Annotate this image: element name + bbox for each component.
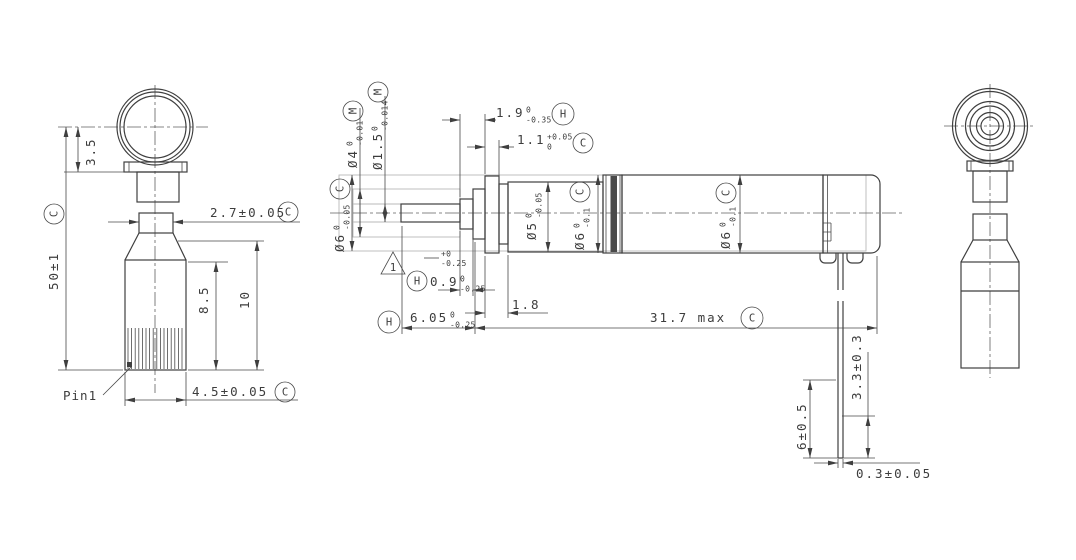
solder-tab-right — [847, 253, 863, 263]
dia4-sup: 0 — [346, 141, 355, 146]
dim-4-5-text: 4.5±0.05 — [192, 384, 268, 399]
dia6-env-text: Ø6 — [332, 233, 347, 252]
shoulder-taper — [125, 233, 186, 260]
dim-1-1-sup: +0.05 — [547, 133, 573, 142]
dim-2-7-flag: C — [285, 207, 291, 219]
dim-10-text: 10 — [237, 290, 252, 309]
dim-6-text: 6±0.5 — [794, 402, 809, 450]
dim-6-05-sub: -0.25 — [450, 321, 476, 330]
dia6-mid-text: Ø6 — [572, 231, 587, 250]
flange-neck — [499, 184, 508, 244]
dim-50-flag: C — [49, 211, 61, 217]
ext-lines — [838, 459, 843, 468]
dim-4-5-flag: C — [282, 387, 288, 399]
dia6-right-sup: 0 — [719, 222, 728, 227]
dia1-5-text: Ø1.5 — [370, 132, 385, 170]
dim-6-05-flag: H — [386, 317, 392, 329]
revision-triangle-number: 1 — [390, 262, 396, 274]
groove-band — [611, 176, 618, 252]
dim-50-label: 50±1 C — [44, 204, 64, 290]
middle-side-view: Ø6 0 -0.05 C Ø4 0 -0.01 M Ø1.5 0 -0.014 … — [330, 82, 932, 481]
solder-tab-left — [820, 253, 836, 263]
dia4-text: Ø4 — [345, 149, 360, 168]
pin-collar — [473, 189, 485, 239]
dim-1-1-text: 1.1 — [517, 132, 546, 147]
dim-1-1-sub: 0 — [547, 143, 552, 152]
dim-0-9-flag: H — [414, 276, 420, 288]
dim-31-7-flag: C — [749, 313, 755, 325]
dim-31-7-text: 31.7 max — [650, 310, 726, 325]
flange — [485, 176, 499, 253]
body — [125, 260, 186, 370]
pin1-leader — [103, 367, 131, 395]
dim-1-8-text: 1.8 — [512, 297, 541, 312]
pin1-label: Pin1 — [63, 388, 97, 403]
dim-3-3-text: 3.3±0.3 — [849, 333, 864, 400]
collar-chamfer-ticks — [129, 162, 182, 172]
dia6-mid-sub: -0.1 — [583, 208, 592, 228]
dim-8-5-text: 8.5 — [196, 285, 211, 314]
restricted-section — [139, 213, 173, 233]
dia1-5-sub: -0.014 — [381, 100, 390, 131]
ext-lines — [460, 114, 485, 197]
dim-10-label: 10 — [237, 290, 252, 309]
dim-0-9-sup: 0 — [460, 275, 465, 284]
technical-drawing-page: 3.5 50±1 C 2.7±0.05 C 8.5 10 4.5±0.05 — [0, 0, 1076, 560]
dia6-env-sub: -0.05 — [343, 204, 352, 230]
ext-lines — [803, 380, 875, 458]
dia6-mid-flag: C — [575, 189, 587, 195]
dim-2-7-text: 2.7±0.05 — [210, 205, 286, 220]
connector-engineering-drawing: 3.5 50±1 C 2.7±0.05 C 8.5 10 4.5±0.05 — [0, 0, 1076, 560]
dia6-right-text: Ø6 — [718, 230, 733, 249]
dia6-mid-label: Ø6 0 -0.1 C — [570, 182, 592, 250]
dim-0-9-text: 0.9 — [430, 274, 459, 289]
ext-lines — [125, 372, 186, 406]
dim-0-3-text: 0.3±0.05 — [856, 466, 932, 481]
dia5-text: Ø5 — [524, 221, 539, 240]
dia6-env-flag: C — [335, 186, 347, 192]
dia4-sub: -0.01 — [356, 120, 365, 146]
ext-lines — [485, 255, 508, 318]
dia5-sub: -0.05 — [535, 192, 544, 218]
dim-6-05-sup: 0 — [450, 311, 455, 320]
pin1-leader-dot — [127, 362, 132, 367]
dim-3-5-text: 3.5 — [83, 137, 98, 166]
dia6-right-sub: -0.1 — [729, 207, 738, 227]
dim-8-5-label: 8.5 — [196, 285, 211, 314]
head-collar — [124, 162, 187, 172]
float-tol-sup: +0 — [441, 250, 451, 259]
dia5-label: Ø5 0 -0.05 — [524, 192, 544, 240]
dim-6-label: 6±0.5 — [794, 402, 809, 450]
pin-step — [460, 199, 473, 229]
dia6-envelope-label: Ø6 0 -0.05 C — [330, 179, 352, 252]
dim-1-1-flag: C — [580, 138, 586, 150]
dia6-mid-sup: 0 — [573, 223, 582, 228]
dia6-env-sup: 0 — [333, 225, 342, 230]
dim-3-5-label: 3.5 — [83, 137, 98, 166]
dia6-right-label: Ø6 0 -0.1 C — [716, 183, 738, 249]
dim-50-text: 50±1 — [46, 252, 61, 290]
dia4-flag: M — [348, 108, 360, 114]
end-cap — [823, 175, 880, 253]
dim-1-9-text: 1.9 — [496, 105, 525, 120]
dim-1-9-sub: -0.35 — [526, 116, 552, 125]
dim-3-3-label: 3.3±0.3 — [849, 333, 864, 400]
dim-1-9-sup: 0 — [526, 106, 531, 115]
dia4-label: Ø4 0 -0.01 M — [343, 101, 365, 168]
dia1-5-label: Ø1.5 0 -0.014 M — [368, 82, 390, 170]
left-view: 3.5 50±1 C 2.7±0.05 C 8.5 10 4.5±0.05 — [44, 85, 300, 406]
dia6-right-flag: C — [721, 190, 733, 196]
dia1-5-flag: M — [373, 89, 385, 95]
lead-terminal — [838, 253, 843, 458]
dia5-sup: 0 — [525, 213, 534, 218]
dim-1-9-flag: H — [560, 109, 566, 121]
dim-6-05-text: 6.05 — [410, 310, 448, 325]
dia1-5-sup: 0 — [371, 126, 380, 131]
neck — [137, 172, 179, 202]
float-tol-sub: -0.25 — [441, 259, 467, 268]
dim-0-9-sub: -0.25 — [460, 285, 486, 294]
right-end-view — [944, 84, 1036, 378]
